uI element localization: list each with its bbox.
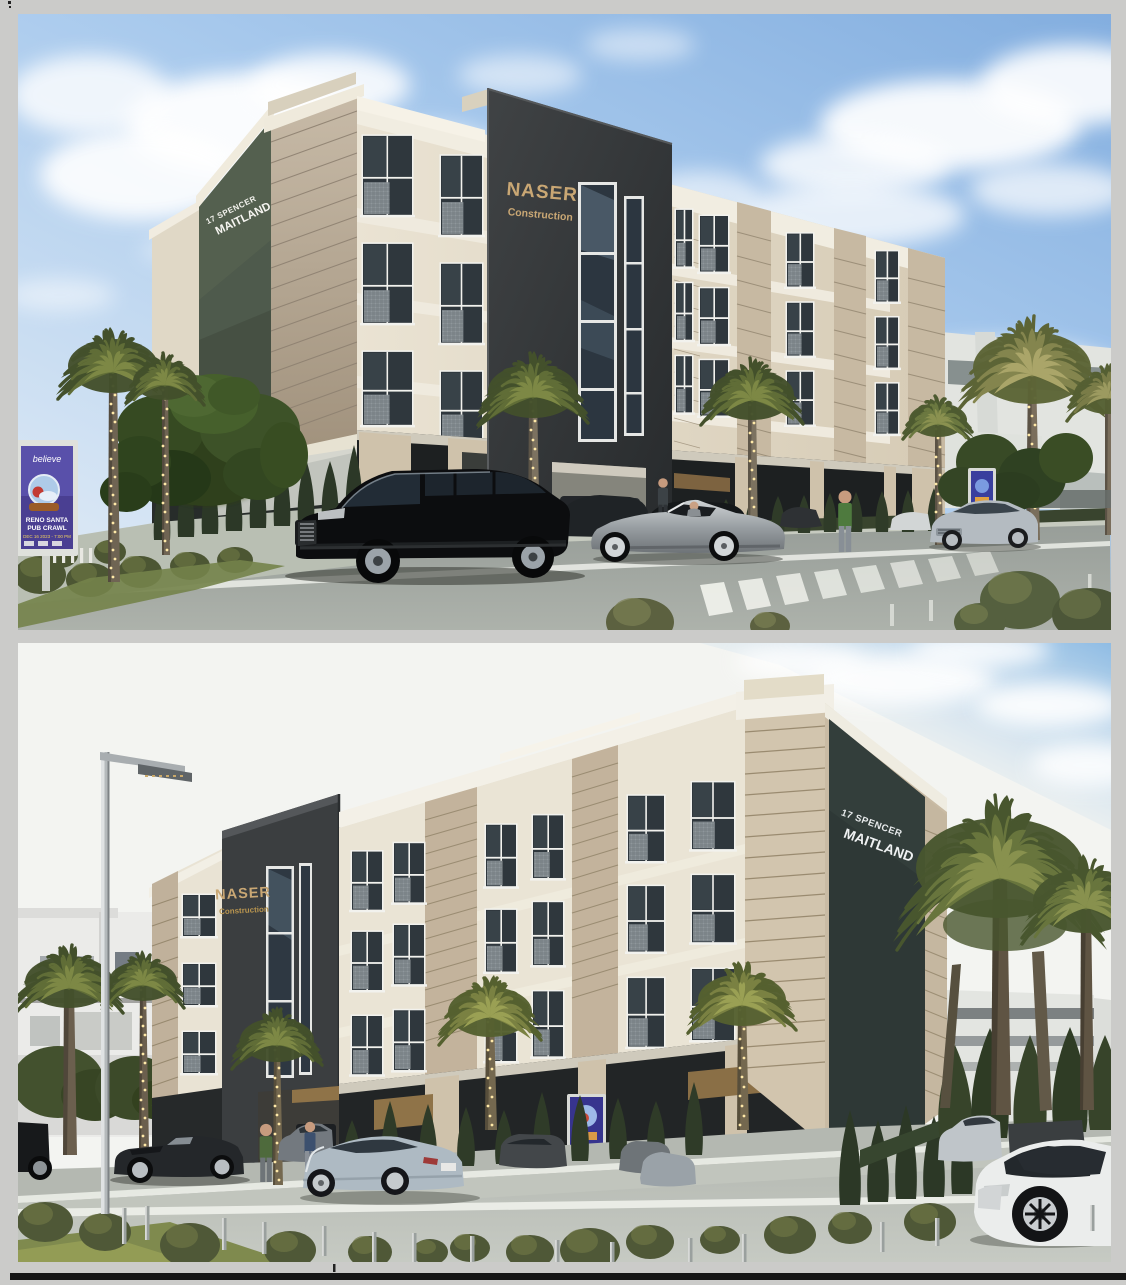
svg-text:RENO SANTA: RENO SANTA	[26, 517, 69, 524]
svg-text:DEC 16 2023 - 7:00 PM: DEC 16 2023 - 7:00 PM	[23, 534, 71, 539]
svg-text:NASER: NASER	[215, 885, 272, 904]
svg-text:believe: believe	[33, 454, 62, 464]
svg-text:PUB CRAWL: PUB CRAWL	[27, 525, 66, 532]
